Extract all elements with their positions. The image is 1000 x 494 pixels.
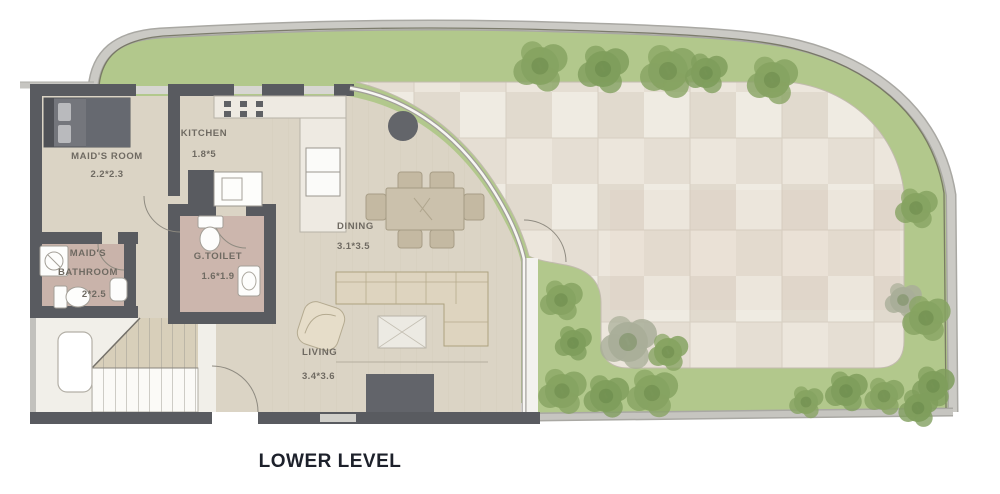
round-planter-icon [388,111,418,141]
plan-title: LOWER LEVEL [230,451,430,473]
bed-icon [44,98,130,147]
maids-bathroom-label: MAID'S BATHROOM [52,245,124,282]
g-toilet-dims: 1.6*1.9 [180,271,256,282]
dining-label: DINING [337,218,417,237]
kitchen-sink-island-icon [214,172,262,206]
maids-bathroom-dims: 2*2.5 [62,289,126,300]
floor-plan-canvas [0,0,1000,494]
lower-left-thin-wall [30,318,36,412]
maids-room-dims: 2.2*2.3 [42,169,172,180]
living-label: LIVING [302,344,382,363]
kitchen-label: KITCHEN [159,125,249,144]
dining-dims: 3.1*3.5 [337,241,417,252]
floor-plan: MAID'S ROOM 2.2*2.3 KITCHEN 1.8*5 MAID'S… [0,0,1000,494]
under-stair-bench [58,332,92,392]
living-dims: 3.4*3.6 [302,371,382,382]
kitchen-dims: 1.8*5 [159,149,249,160]
g-toilet-label: G.TOILET [180,248,256,267]
maids-room-label: MAID'S ROOM [42,148,172,167]
